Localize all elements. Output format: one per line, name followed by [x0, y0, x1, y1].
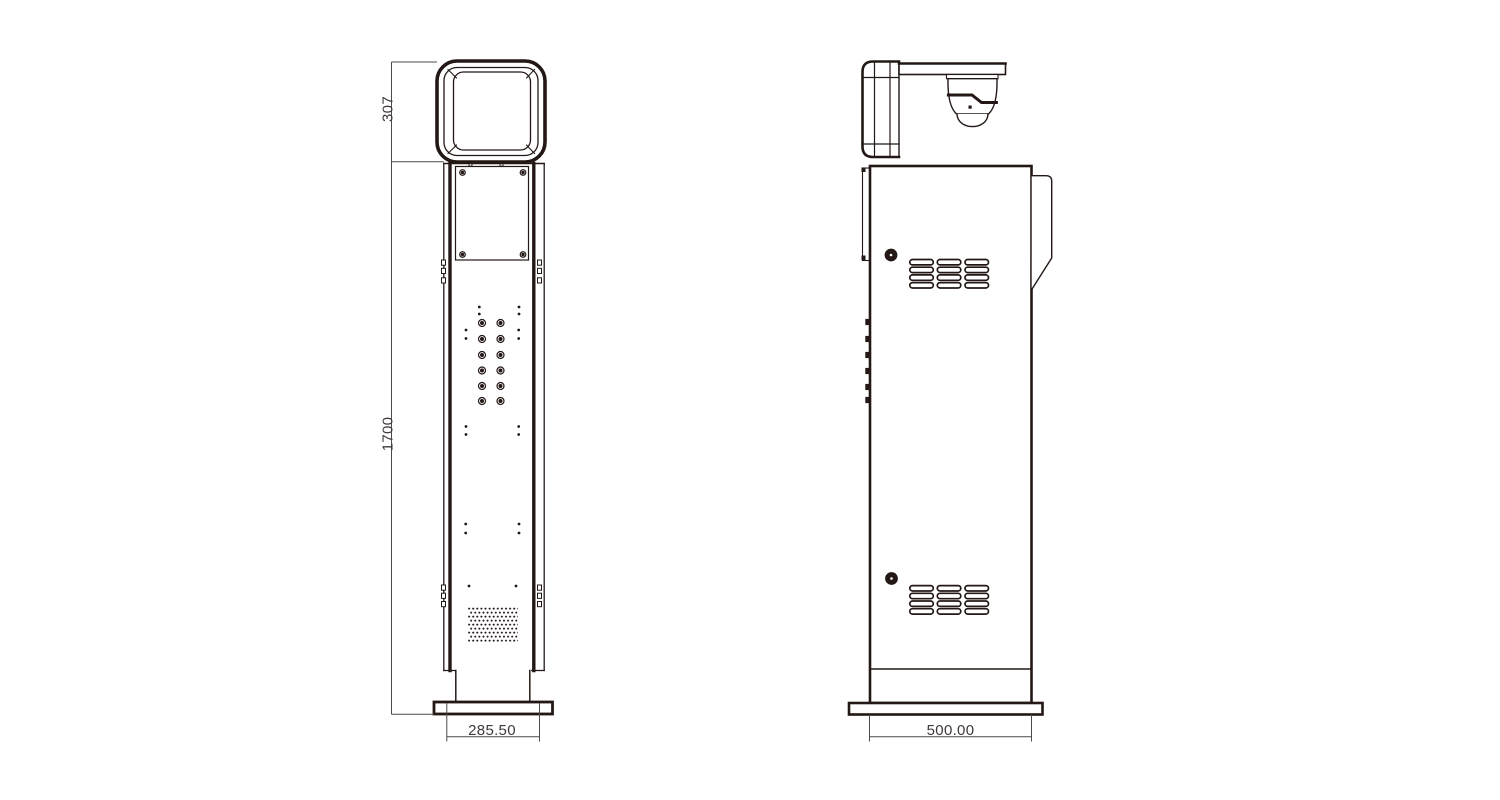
plate-screw-holes [460, 170, 526, 258]
side-cabinet [870, 166, 1032, 703]
camera-indicator [969, 106, 972, 109]
dim-body-height-label: 1700 [380, 417, 397, 452]
front-side-latches [442, 260, 542, 607]
camera-dome [957, 114, 988, 127]
camera-arm [899, 64, 1006, 75]
front-mount-plate [456, 167, 529, 261]
front-display-head [437, 61, 545, 162]
dim-front-width-label: 285.50 [468, 722, 516, 739]
dim-vertical-chain [392, 62, 444, 714]
dome-camera [947, 75, 999, 127]
technical-drawing: 307 1700 285.50 500.00 [0, 0, 1500, 800]
ring-holes [479, 320, 505, 405]
pilot-dots [464, 306, 520, 588]
speaker-grille [468, 607, 518, 644]
dim-head-height-label: 307 [380, 96, 397, 122]
side-base-plate [849, 703, 1043, 715]
dim-side-depth-label: 500.00 [927, 722, 975, 739]
front-base-plate [434, 702, 553, 714]
side-display-head [863, 62, 900, 158]
drawing-canvas: 307 1700 285.50 500.00 [0, 0, 1500, 800]
screen-back-fin [1032, 176, 1052, 290]
front-view [434, 61, 553, 714]
side-view [849, 62, 1052, 715]
front-hole-pattern [464, 306, 520, 588]
